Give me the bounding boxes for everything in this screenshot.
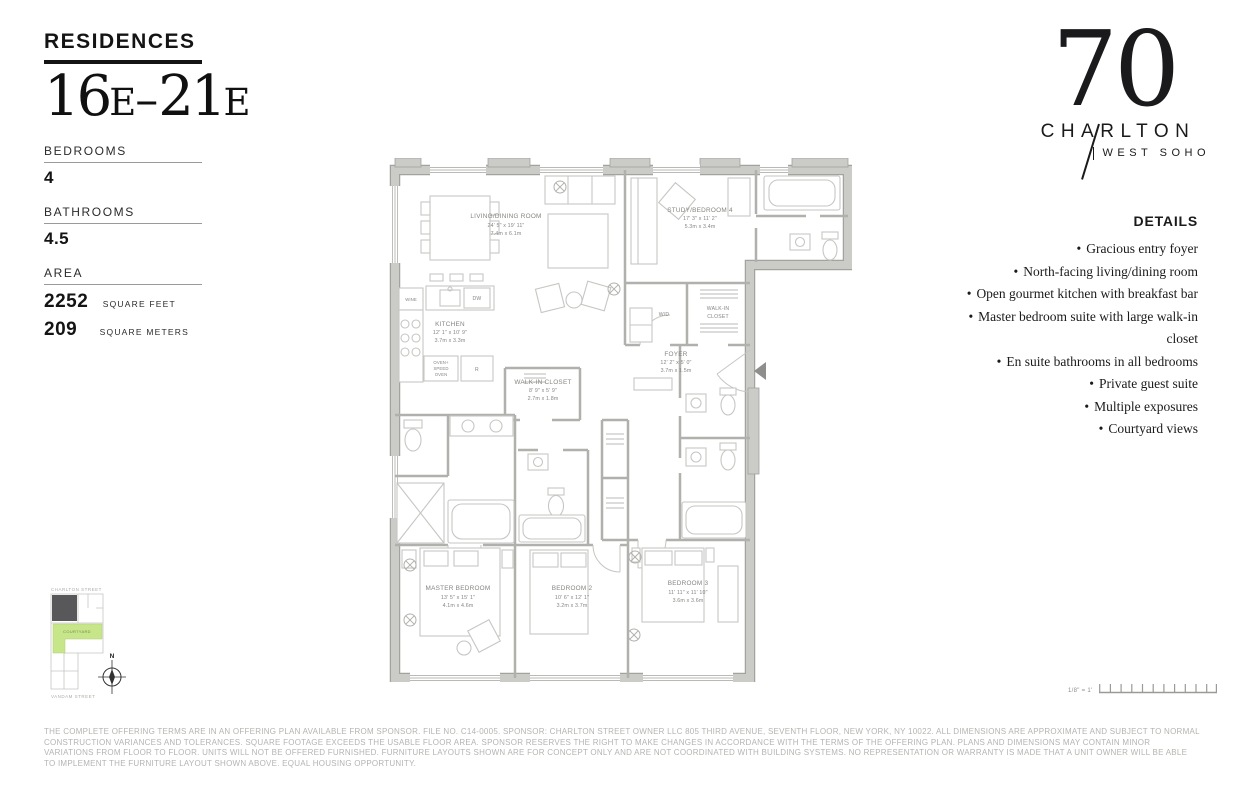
room-dim-metric: 3.6m x 3.6m [673, 598, 704, 604]
legal-disclaimer: THE COMPLETE OFFERING TERMS ARE IN AN OF… [44, 727, 1200, 769]
detail-item: •Multiple exposures [952, 396, 1198, 419]
detail-item: •Gracious entry foyer [952, 238, 1198, 261]
scale-label: 1/8" = 1' [1068, 688, 1093, 694]
street-label-bottom: VANDAM STREET [51, 694, 95, 699]
detail-text: Open gourmet kitchen with breakfast bar [976, 286, 1198, 301]
room-dim-metric: 4.1m x 4.6m [443, 603, 474, 609]
entry-arrow-icon [754, 362, 766, 380]
logo-name: CHARLTON [1016, 121, 1212, 143]
bedrooms-stat: BEDROOMS 4 [44, 144, 214, 188]
room-label-foyer: FOYER [664, 351, 687, 358]
detail-text: Multiple exposures [1094, 399, 1198, 414]
room-dim-imperial: 17' 3" x 11' 2" [683, 216, 717, 222]
residences-heading: RESIDENCES [44, 30, 214, 54]
bathrooms-value: 4.5 [44, 229, 214, 249]
siteplan-svg: CHARLTON STREET COURTYARD VANDAM STREET … [48, 583, 178, 708]
bullet-icon: • [1014, 264, 1019, 279]
detail-item: •Private guest suite [952, 373, 1198, 396]
unit-range-part: E [109, 81, 135, 124]
bullet-icon: • [968, 309, 973, 324]
detail-item: •En suite bathrooms in all bedrooms [952, 351, 1198, 374]
area-sqft-row: 2252 SQUARE FEET [44, 291, 214, 313]
unit-range-part: 16 [44, 64, 109, 129]
unit-range-part: 21 [158, 64, 223, 129]
area-stat: AREA 2252 SQUARE FEET 209 SQUARE METERS [44, 266, 214, 341]
detail-item: •Courtyard views [952, 418, 1198, 441]
room-dim-imperial: 11' 11" x 11' 10" [668, 590, 707, 596]
detail-text: Gracious entry foyer [1086, 241, 1198, 256]
room-label-living: LIVING/DINING ROOM [470, 213, 541, 220]
unit-info-sidebar: RESIDENCES 16E–21E BEDROOMS 4 BATHROOMS … [44, 30, 214, 341]
unit-range-dash: – [135, 72, 158, 126]
room-dim-imperial: 12' 2" x 5' 0" [660, 360, 691, 366]
label-wine-fridge: WINE [405, 297, 417, 302]
street-label-top: CHARLTON STREET [51, 587, 102, 592]
area-label: AREA [44, 266, 202, 285]
label-refrigerator: R [475, 367, 479, 373]
room-label-bedroom-3: BEDROOM 3 [668, 580, 709, 587]
building-logo: 70 CHARLTON WEST SOHO [1016, 20, 1212, 160]
brochure-page: RESIDENCES 16E–21E BEDROOMS 4 BATHROOMS … [0, 0, 1242, 810]
area-sqft-value: 2252 [44, 291, 88, 312]
area-sqm-unit: SQUARE METERS [100, 327, 189, 337]
logo-number: 70 [1016, 20, 1212, 119]
bullet-icon: • [1084, 399, 1089, 414]
room-dim-imperial: 24' 5" x 19' 11" [488, 223, 525, 229]
compass-north-label: N [110, 653, 115, 660]
room-dim-metric: 3.7m x 3.3m [435, 338, 466, 344]
label-walkin-closet-2: WALK-IN [707, 306, 730, 312]
detail-text: Private guest suite [1099, 376, 1198, 391]
bullet-icon: • [1099, 421, 1104, 436]
unit-range: 16E–21E [44, 68, 214, 127]
bullet-icon: • [1077, 241, 1082, 256]
label-oven: SPEED [433, 366, 448, 371]
logo-tagline-row: WEST SOHO [1016, 147, 1212, 160]
detail-item: •North-facing living/dining room [952, 261, 1198, 284]
room-dim-metric: 7.4m x 6.1m [491, 231, 522, 237]
scale-bar: 1/8" = 1' [1068, 681, 1219, 694]
detail-item: •Master bedroom suite with large walk-in… [952, 306, 1198, 351]
unit-highlight [52, 595, 77, 621]
room-dim-imperial: 13' 5" x 15' 1" [441, 595, 475, 601]
bathrooms-stat: BATHROOMS 4.5 [44, 205, 214, 249]
area-sqm-value: 209 [44, 319, 77, 340]
bullet-icon: • [967, 286, 972, 301]
room-dim-metric: 5.3m x 3.4m [685, 224, 716, 230]
label-washer-dryer: W/D [659, 312, 670, 318]
area-sqm-row: 209 SQUARE METERS [44, 319, 214, 341]
logo-tagline-divider [1093, 147, 1094, 160]
logo-tagline: WEST SOHO [1102, 147, 1210, 159]
room-label-bedroom-2: BEDROOM 2 [552, 585, 593, 592]
details-section: DETAILS •Gracious entry foyer •North-fac… [952, 213, 1198, 441]
unit-range-part: E [224, 81, 250, 124]
compass-icon: N [98, 653, 126, 694]
room-label-walkin-closet: WALK-IN CLOSET [514, 379, 571, 386]
label-walkin-closet-2: CLOSET [707, 314, 729, 320]
scale-ruler [1099, 681, 1219, 694]
room-label-master-bedroom: MASTER BEDROOM [426, 585, 491, 592]
detail-text: Master bedroom suite with large walk-in … [978, 309, 1198, 347]
room-label-study: STUDY/BEDROOM 4 [667, 207, 733, 214]
floorplan-svg: LIVING/DINING ROOM 24' 5" x 19' 11" 7.4m… [388, 158, 852, 682]
room-dim-imperial: 10' 6" x 12' 1" [555, 595, 589, 601]
bullet-icon: • [1089, 376, 1094, 391]
room-dim-imperial: 8' 9" x 5' 9" [529, 388, 557, 394]
details-heading: DETAILS [952, 213, 1198, 229]
detail-text: North-facing living/dining room [1023, 264, 1198, 279]
room-dim-metric: 3.7m x 1.5m [661, 368, 692, 374]
room-dim-metric: 3.2m x 3.7m [557, 603, 588, 609]
bedrooms-value: 4 [44, 168, 214, 188]
bathrooms-label: BATHROOMS [44, 205, 202, 224]
label-oven: OVEN+ [433, 360, 449, 365]
label-dishwasher: DW [473, 296, 482, 302]
detail-item: •Open gourmet kitchen with breakfast bar [952, 283, 1198, 306]
detail-text: Courtyard views [1108, 421, 1198, 436]
label-oven: OVEN [435, 372, 448, 377]
courtyard-label: COURTYARD [63, 629, 91, 634]
detail-text: En suite bathrooms in all bedrooms [1006, 354, 1198, 369]
furniture [397, 176, 840, 655]
bullet-icon: • [997, 354, 1002, 369]
room-dim-imperial: 12' 1" x 10' 9" [433, 330, 467, 336]
area-sqft-unit: SQUARE FEET [103, 299, 176, 309]
room-dim-metric: 2.7m x 1.8m [528, 396, 559, 402]
bedrooms-label: BEDROOMS [44, 144, 202, 163]
room-label-kitchen: KITCHEN [435, 321, 465, 328]
